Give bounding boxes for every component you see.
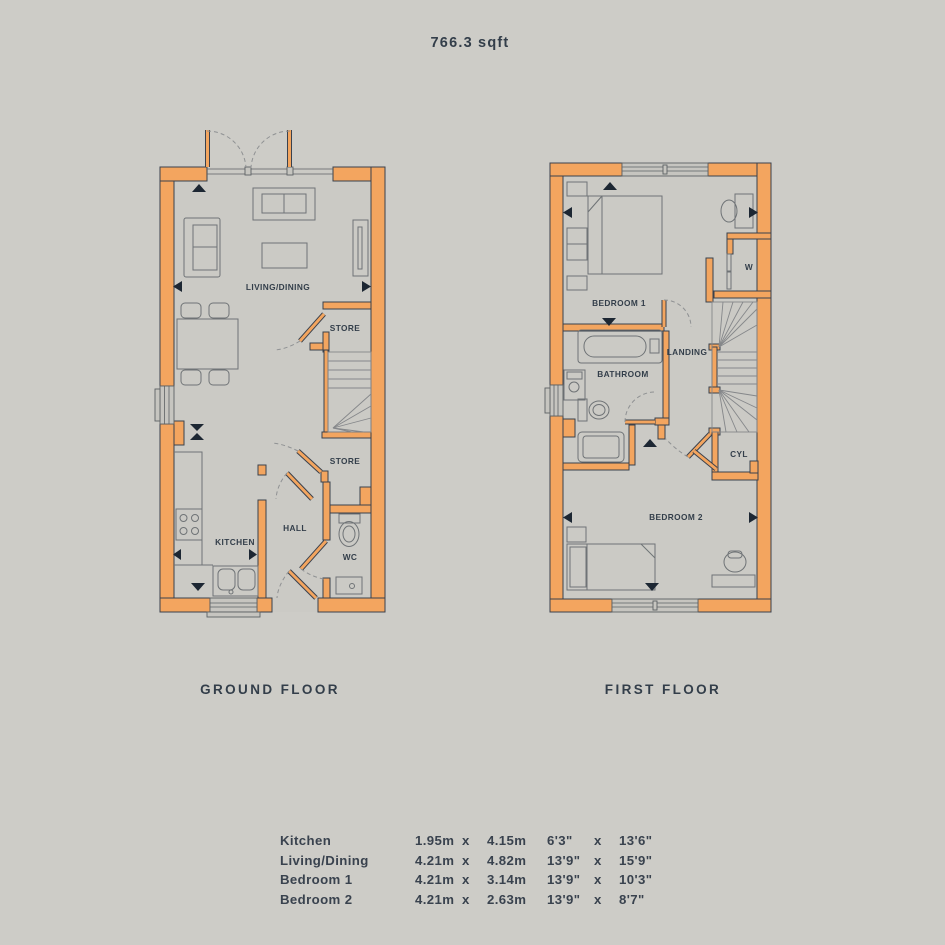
dim-separator: x	[462, 872, 487, 892]
landing-label: LANDING	[667, 347, 708, 357]
metric-width: 4.21m	[415, 892, 462, 912]
first-floor-title: FIRST FLOOR	[543, 682, 783, 697]
imperial-length: 13'6"	[619, 833, 669, 853]
imperial-width: 6'3"	[547, 833, 594, 853]
ground-floor-interior	[160, 167, 385, 612]
room-name: Kitchen	[280, 833, 415, 853]
imperial-width: 13'9"	[547, 892, 594, 912]
bedroom1-label: BEDROOM 1	[592, 298, 646, 308]
first-floor-plan: BEDROOM 1 W LANDING BATHROOM CYL BEDROOM…	[538, 150, 778, 622]
store-upper-label: STORE	[330, 323, 360, 333]
ground-floor-plan: LIVING/DINING STORE STORE HALL KITCHEN W…	[150, 120, 395, 625]
dim-separator: x	[462, 892, 487, 912]
dimensions-table: Kitchen 1.95m x 4.15m 6'3" x 13'6" Livin…	[280, 833, 669, 911]
side-window-frame	[155, 389, 160, 421]
metric-length: 4.15m	[487, 833, 547, 853]
metric-length: 4.82m	[487, 853, 547, 873]
dim-separator: x	[594, 833, 619, 853]
front-window-sill	[207, 612, 260, 617]
bathroom-label: BATHROOM	[597, 369, 648, 379]
room-name: Bedroom 1	[280, 872, 415, 892]
floorplan-page: 766.3 sqft	[0, 0, 945, 945]
room-name: Living/Dining	[280, 853, 415, 873]
room-name: Bedroom 2	[280, 892, 415, 912]
dim-separator: x	[594, 872, 619, 892]
bedroom2-label: BEDROOM 2	[649, 512, 703, 522]
dim-separator: x	[594, 892, 619, 912]
imperial-width: 13'9"	[547, 853, 594, 873]
imperial-width: 13'9"	[547, 872, 594, 892]
metric-length: 2.63m	[487, 892, 547, 912]
metric-width: 4.21m	[415, 872, 462, 892]
imperial-length: 10'3"	[619, 872, 669, 892]
imperial-length: 8'7"	[619, 892, 669, 912]
ground-floor-title: GROUND FLOOR	[150, 682, 390, 697]
kitchen-side-window	[160, 386, 174, 424]
wc-label: WC	[343, 552, 358, 562]
dim-separator: x	[462, 853, 487, 873]
store-lower-label: STORE	[330, 456, 360, 466]
page-title: 766.3 sqft	[0, 35, 940, 51]
imperial-length: 15'9"	[619, 853, 669, 873]
dim-separator: x	[594, 853, 619, 873]
cylinder-label: CYL	[730, 449, 748, 459]
metric-length: 3.14m	[487, 872, 547, 892]
metric-width: 1.95m	[415, 833, 462, 853]
dim-separator: x	[462, 833, 487, 853]
metric-width: 4.21m	[415, 853, 462, 873]
hall-label: HALL	[283, 523, 307, 533]
first-floor-interior	[550, 163, 771, 612]
living-dining-label: LIVING/DINING	[246, 282, 310, 292]
kitchen-label: KITCHEN	[215, 537, 255, 547]
kitchen-front-window	[210, 598, 257, 612]
wardrobe-label: W	[745, 262, 753, 272]
bathroom-window	[550, 385, 563, 416]
